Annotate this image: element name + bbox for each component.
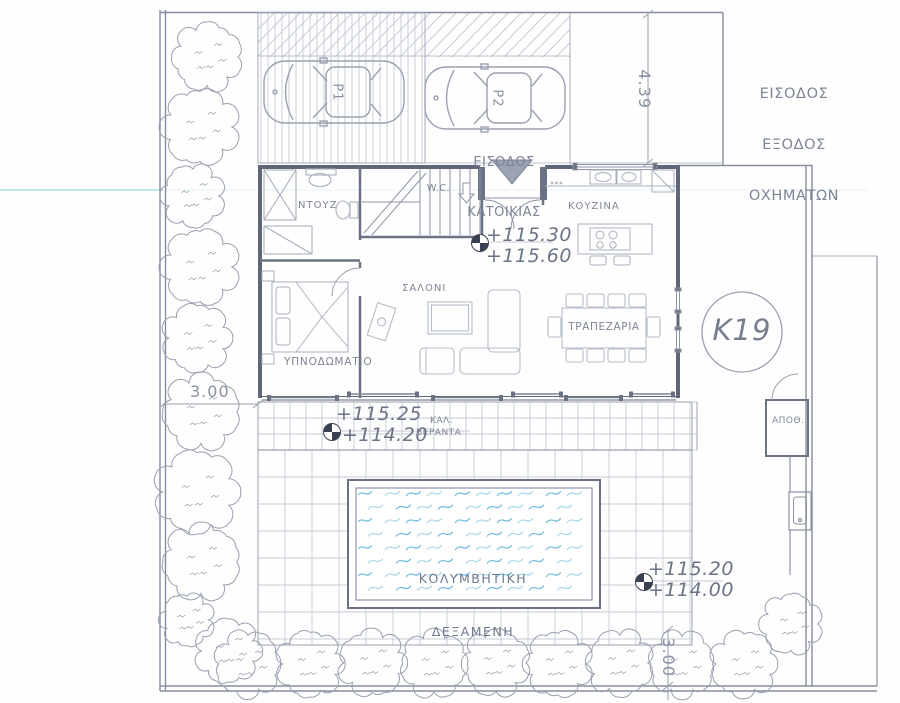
living-furniture [367,290,520,374]
room-storage-label: ΑΠΟΘ. [772,416,804,426]
tree-icon [159,593,215,647]
bedroom-furniture [262,271,348,364]
ramp-hatch [230,11,627,58]
room-wc-label: W.C. [427,184,450,195]
pool-equipment [789,456,811,575]
level-interior-lower: +115.60 [486,246,572,268]
veranda-abbr-label: ΚΑΛ. [430,416,453,426]
vehicle-entrance-line2: ΕΞΟΔΟΣ [736,137,852,154]
tree-icon [162,304,233,373]
tree-icon [159,229,239,306]
bathroom-fixtures [264,169,358,254]
level-pool-upper: +115.20 [648,559,734,581]
vehicle-entrance-label: ΕΙΣΟΔΟΣ ΕΞΟΔΟΣ ΟΧΗΜΑΤΩΝ [736,52,852,222]
room-bedroom-label: ΥΠΝΟΔΩΜΑΤΙΟ [284,356,372,368]
tree-icon [710,630,778,699]
tree-icon [214,630,280,700]
level-pool-lower: +114.00 [648,580,734,602]
storage-room [766,374,808,456]
room-kitchen-label: ΚΟΥΖΙΝΑ [568,201,620,213]
dimension-driveway-label: 4.39 [635,62,653,116]
level-veranda-upper: +115.25 [336,404,422,426]
level-marker-veranda-icon [324,424,341,441]
room-shower-label: ΝΤΟΥΖ [298,200,337,212]
level-interior-upper: +115.30 [486,225,572,247]
room-dining-label: ΤΡΑΠΕΖΑΡΙΑ [564,321,644,333]
vehicle-entrance-line3: ΟΧΗΜΑΤΩΝ [736,188,852,205]
pool-label-line1: ΚΟΛΥΜΒΗΤΙΚΗ [397,570,549,588]
house-entrance-line2: ΚΑΤΟΙΚΙΑΣ [446,205,562,222]
plot-number-label: K19 [702,314,782,347]
tree-icon [160,164,225,228]
tree-icon [276,631,345,698]
parking-space-p1-label: P1 [329,66,344,118]
parking-space-p2-label: P2 [489,72,504,124]
tree-icon [159,89,239,166]
kitchen-window [573,163,657,170]
tree-icon [171,22,241,92]
veranda-name-label: ΒΕΡΑΝΤΑ [416,428,461,438]
dimension-bottom-setback-label: 3.00 [659,630,677,684]
vehicle-entrance-line1: ΕΙΣΟΔΟΣ [736,86,852,103]
dimension-left-setback-label: 3.00 [190,383,230,401]
site-plan-canvas: ΕΙΣΟΔΟΣ ΕΞΟΔΟΣ ΟΧΗΜΑΤΩΝ P1 P2 ΕΙΣΟΔΟΣ ΚΑ… [0,0,900,703]
house-entrance-line1: ΕΙΣΟΔΟΣ [446,155,562,172]
room-living-label: ΣΑΛΟΝΙ [402,283,446,295]
pool-label-line2: ΔΕΞΑΜΕΝΗ [397,623,549,641]
house-entrance-label: ΕΙΣΟΔΟΣ ΚΑΤΟΙΚΙΑΣ [446,122,562,238]
veranda-tiles [258,402,697,450]
pool-label: ΚΟΛΥΜΒΗΤΙΚΗ ΔΕΞΑΜΕΝΗ [397,535,549,658]
